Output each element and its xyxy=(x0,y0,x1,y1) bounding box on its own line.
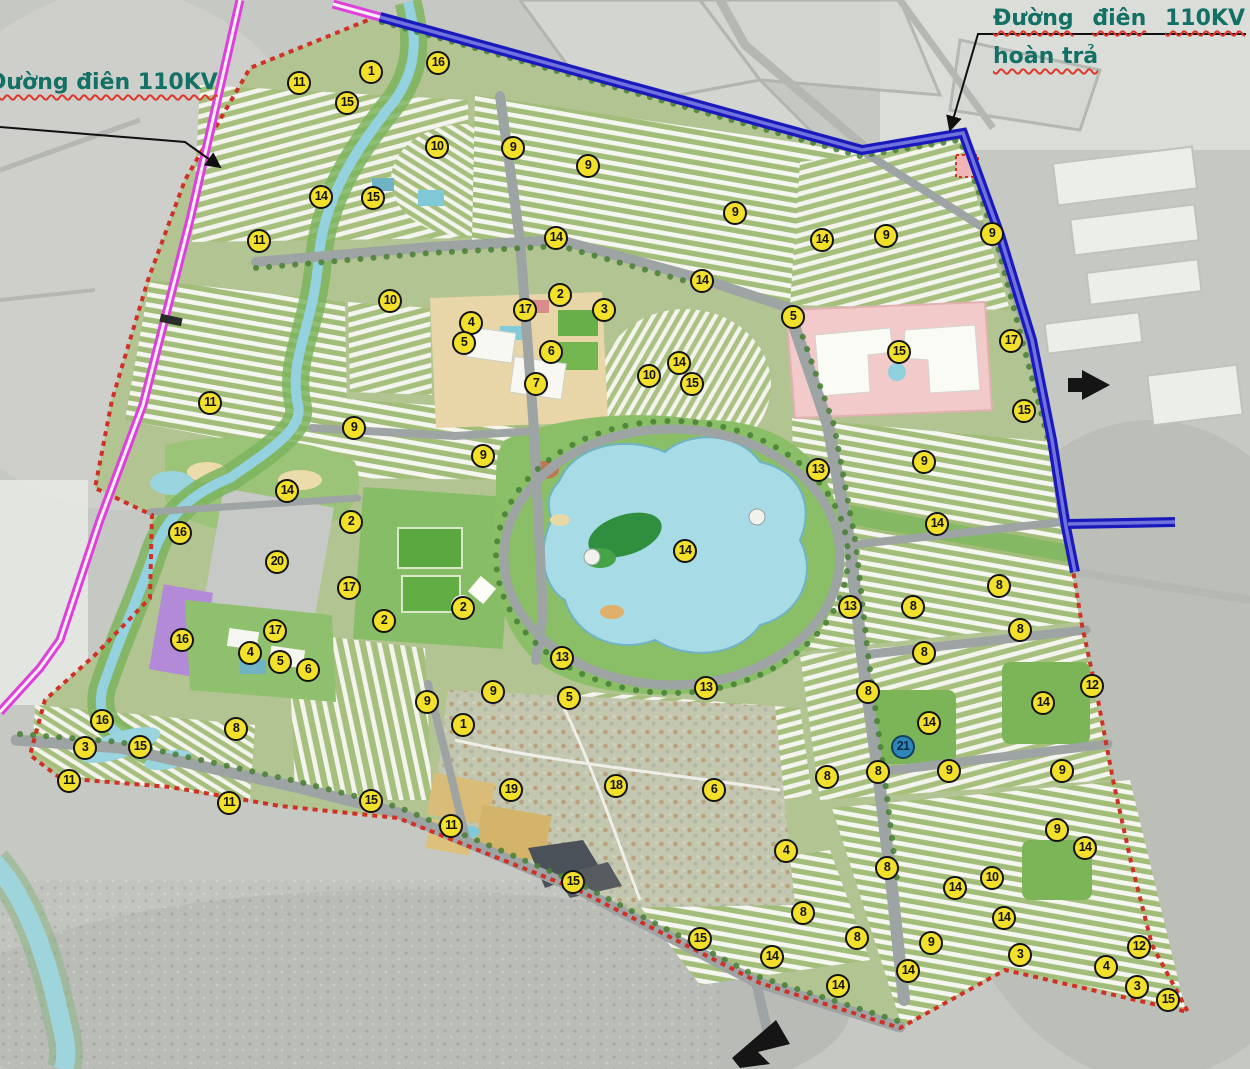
plot-marker-17: 17 xyxy=(263,619,287,643)
powerline-label-right-w2: điên xyxy=(1092,6,1146,31)
plot-marker-9: 9 xyxy=(481,680,505,704)
plot-marker-1: 1 xyxy=(359,60,383,84)
plot-marker-16: 16 xyxy=(426,51,450,75)
plot-marker-14: 14 xyxy=(1031,691,1055,715)
plot-marker-11: 11 xyxy=(217,791,241,815)
plot-marker-16: 16 xyxy=(168,521,192,545)
plot-marker-20: 20 xyxy=(265,550,289,574)
plot-marker-8: 8 xyxy=(815,765,839,789)
plot-marker-5: 5 xyxy=(452,331,476,355)
plot-marker-14: 14 xyxy=(673,539,697,563)
plot-marker-12: 12 xyxy=(1127,935,1151,959)
plot-marker-14: 14 xyxy=(275,479,299,503)
plot-marker-8: 8 xyxy=(901,595,925,619)
plot-marker-19: 19 xyxy=(499,778,523,802)
plot-marker-15: 15 xyxy=(128,735,152,759)
plot-marker-9: 9 xyxy=(874,224,898,248)
plot-marker-15: 15 xyxy=(680,372,704,396)
plot-marker-16: 16 xyxy=(90,709,114,733)
plot-marker-11: 11 xyxy=(247,229,271,253)
plot-marker-10: 10 xyxy=(980,866,1004,890)
plot-marker-16: 16 xyxy=(170,628,194,652)
plot-marker-8: 8 xyxy=(1008,618,1032,642)
markers-layer: 1111615109914159149911141410217354561517… xyxy=(0,0,1250,1069)
plot-marker-3: 3 xyxy=(1008,943,1032,967)
plot-marker-10: 10 xyxy=(425,135,449,159)
plot-marker-9: 9 xyxy=(919,931,943,955)
plot-marker-15: 15 xyxy=(688,927,712,951)
plot-marker-14: 14 xyxy=(1073,836,1097,860)
plot-marker-2: 2 xyxy=(451,596,475,620)
plot-marker-14: 14 xyxy=(826,974,850,998)
plot-marker-3: 3 xyxy=(592,298,616,322)
plot-marker-4: 4 xyxy=(774,839,798,863)
plot-marker-14: 14 xyxy=(309,185,333,209)
plot-marker-15: 15 xyxy=(1012,399,1036,423)
plot-marker-2: 2 xyxy=(372,609,396,633)
plot-marker-2: 2 xyxy=(548,283,572,307)
plot-marker-5: 5 xyxy=(781,305,805,329)
plot-marker-14: 14 xyxy=(667,351,691,375)
plot-marker-10: 10 xyxy=(637,364,661,388)
plot-marker-9: 9 xyxy=(980,222,1004,246)
plot-marker-5: 5 xyxy=(268,650,292,674)
powerline-label-right-w3: 110KV xyxy=(1165,6,1245,31)
plot-marker-15: 15 xyxy=(561,870,585,894)
plot-marker-1: 1 xyxy=(451,713,475,737)
powerline-label-left: Đường điên 110KV xyxy=(0,70,218,95)
plot-marker-9: 9 xyxy=(501,136,525,160)
plot-marker-2: 2 xyxy=(339,510,363,534)
plot-marker-15: 15 xyxy=(335,91,359,115)
plot-marker-4: 4 xyxy=(238,641,262,665)
plot-marker-5: 5 xyxy=(557,686,581,710)
plot-marker-15: 15 xyxy=(359,789,383,813)
plot-marker-14: 14 xyxy=(810,228,834,252)
plot-marker-21: 21 xyxy=(891,735,915,759)
plot-marker-13: 13 xyxy=(694,676,718,700)
plot-marker-8: 8 xyxy=(987,574,1011,598)
plot-marker-14: 14 xyxy=(925,512,949,536)
plot-marker-11: 11 xyxy=(287,71,311,95)
plot-marker-14: 14 xyxy=(917,711,941,735)
plot-marker-17: 17 xyxy=(999,329,1023,353)
plot-marker-8: 8 xyxy=(791,901,815,925)
plot-marker-15: 15 xyxy=(1156,988,1180,1012)
plot-marker-7: 7 xyxy=(524,372,548,396)
plot-marker-13: 13 xyxy=(550,646,574,670)
plot-marker-9: 9 xyxy=(1045,818,1069,842)
plot-marker-8: 8 xyxy=(866,760,890,784)
plot-marker-3: 3 xyxy=(73,736,97,760)
plot-marker-8: 8 xyxy=(875,856,899,880)
plot-marker-13: 13 xyxy=(806,458,830,482)
plot-marker-3: 3 xyxy=(1125,975,1149,999)
plot-marker-14: 14 xyxy=(690,269,714,293)
plot-marker-15: 15 xyxy=(361,186,385,210)
plot-marker-12: 12 xyxy=(1080,674,1104,698)
plot-marker-17: 17 xyxy=(513,298,537,322)
plot-marker-18: 18 xyxy=(604,774,628,798)
powerline-label-right-w1: Đường xyxy=(993,6,1074,31)
plot-marker-9: 9 xyxy=(471,444,495,468)
plot-marker-14: 14 xyxy=(943,876,967,900)
plot-marker-11: 11 xyxy=(198,391,222,415)
plot-marker-8: 8 xyxy=(856,680,880,704)
plot-marker-11: 11 xyxy=(439,814,463,838)
plot-marker-15: 15 xyxy=(887,340,911,364)
powerline-label-right-line2: hoàn trả xyxy=(993,44,1098,69)
plot-marker-9: 9 xyxy=(912,450,936,474)
plot-marker-13: 13 xyxy=(838,595,862,619)
masterplan-map: 1111615109914159149911141410217354561517… xyxy=(0,0,1250,1069)
plot-marker-9: 9 xyxy=(342,416,366,440)
plot-marker-17: 17 xyxy=(337,576,361,600)
plot-marker-6: 6 xyxy=(702,778,726,802)
plot-marker-9: 9 xyxy=(723,201,747,225)
plot-marker-10: 10 xyxy=(378,289,402,313)
plot-marker-9: 9 xyxy=(576,154,600,178)
plot-marker-6: 6 xyxy=(296,658,320,682)
plot-marker-14: 14 xyxy=(896,959,920,983)
plot-marker-9: 9 xyxy=(937,759,961,783)
plot-marker-6: 6 xyxy=(539,340,563,364)
plot-marker-9: 9 xyxy=(1050,759,1074,783)
plot-marker-8: 8 xyxy=(224,717,248,741)
plot-marker-14: 14 xyxy=(992,906,1016,930)
plot-marker-11: 11 xyxy=(57,769,81,793)
plot-marker-9: 9 xyxy=(415,690,439,714)
plot-marker-4: 4 xyxy=(1094,955,1118,979)
plot-marker-8: 8 xyxy=(845,926,869,950)
plot-marker-8: 8 xyxy=(912,641,936,665)
powerline-label-right-line1: Đường điên 110KV xyxy=(993,6,1245,31)
plot-marker-14: 14 xyxy=(544,226,568,250)
plot-marker-14: 14 xyxy=(760,945,784,969)
